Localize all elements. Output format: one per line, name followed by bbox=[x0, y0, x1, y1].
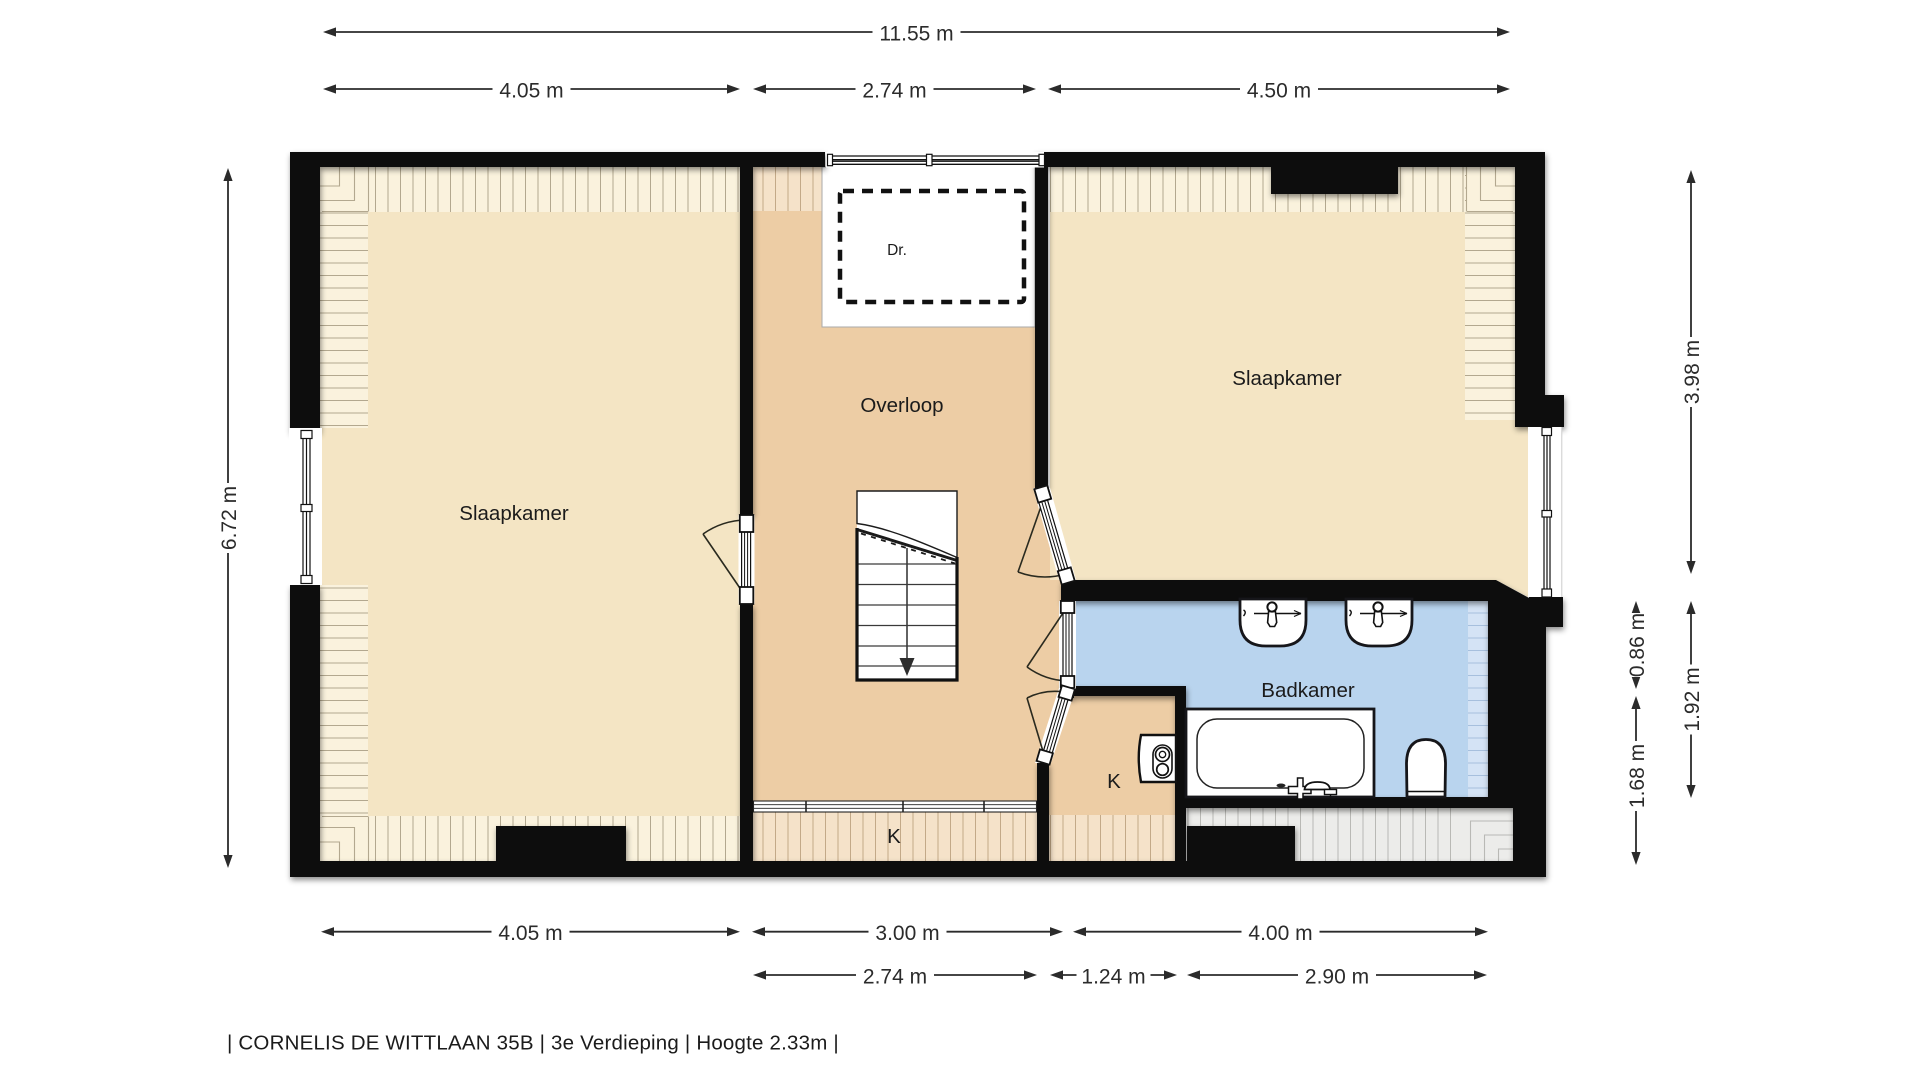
svg-text:Badkamer: Badkamer bbox=[1261, 679, 1355, 702]
svg-text:0.86 m: 0.86 m bbox=[1626, 613, 1649, 677]
svg-text:4.50 m: 4.50 m bbox=[1247, 79, 1311, 102]
svg-text:Slaapkamer: Slaapkamer bbox=[1232, 367, 1342, 390]
svg-text:1.24 m: 1.24 m bbox=[1081, 965, 1145, 988]
svg-text:1.92 m: 1.92 m bbox=[1681, 667, 1704, 731]
svg-text:K: K bbox=[1107, 770, 1121, 793]
svg-text:Slaapkamer: Slaapkamer bbox=[459, 502, 569, 525]
svg-text:4.00 m: 4.00 m bbox=[1248, 922, 1312, 945]
svg-text:2.74 m: 2.74 m bbox=[862, 79, 926, 102]
svg-text:4.05 m: 4.05 m bbox=[498, 922, 562, 945]
svg-text:2.90 m: 2.90 m bbox=[1305, 965, 1369, 988]
svg-text:3.00 m: 3.00 m bbox=[875, 922, 939, 945]
svg-text:Dr.: Dr. bbox=[887, 242, 907, 259]
svg-text:4.05 m: 4.05 m bbox=[499, 79, 563, 102]
svg-text:1.68 m: 1.68 m bbox=[1626, 744, 1649, 808]
svg-text:11.55 m: 11.55 m bbox=[879, 22, 953, 45]
svg-text:| CORNELIS DE WITTLAAN 35B | 3: | CORNELIS DE WITTLAAN 35B | 3e Verdiepi… bbox=[227, 1032, 839, 1055]
svg-text:K: K bbox=[887, 825, 901, 848]
svg-text:2.74 m: 2.74 m bbox=[863, 965, 927, 988]
svg-text:3.98 m: 3.98 m bbox=[1681, 340, 1704, 404]
svg-text:Overloop: Overloop bbox=[860, 394, 943, 417]
svg-text:6.72 m: 6.72 m bbox=[218, 486, 241, 550]
